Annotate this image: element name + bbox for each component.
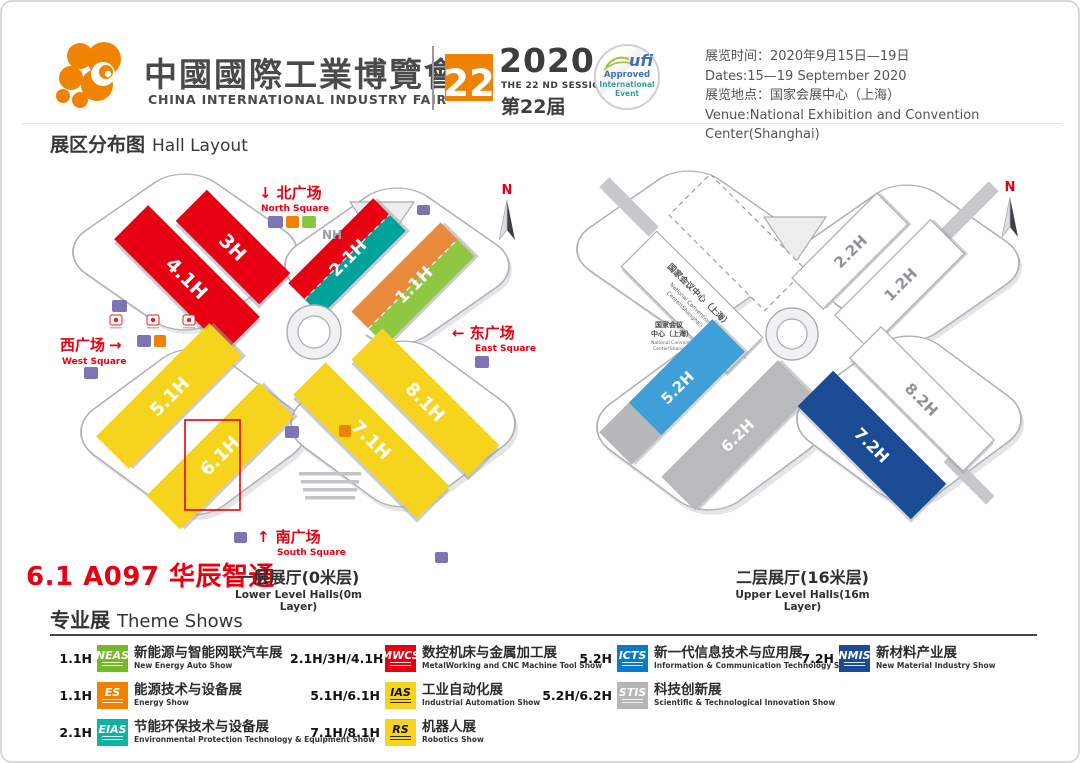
- fair-title-en: CHINA INTERNATIONAL INDUSTRY FAIR: [148, 92, 447, 107]
- svg-text:西广场→: 西广场→: [60, 336, 122, 354]
- south-zh: 南广场: [276, 528, 321, 546]
- compass-icon: N: [499, 183, 515, 240]
- show-logo-eias: EIAS: [97, 719, 128, 746]
- info-time-en: Dates:15—19 September 2020: [705, 67, 1078, 87]
- svg-text:←东广场: ←东广场: [452, 324, 515, 342]
- theme-show-item: 1.1H NEAS 新能源与智能网联汽车展New Energy Auto Sho…: [32, 643, 283, 673]
- svg-text:↓北广场: ↓北广场: [259, 184, 322, 202]
- lower-level-map: 3H 4.1H 2.1H 1.1H 5.1H: [47, 170, 547, 565]
- show-logo-ias: IAS: [385, 682, 416, 709]
- theme-show-item: 7.2H NMIS 新材料产业展New Material Industry Sh…: [764, 643, 996, 673]
- ncc-small-zh1: 国家会议: [655, 320, 684, 329]
- show-title-en: Industrial Automation Show: [422, 698, 540, 707]
- center-ring: [287, 305, 341, 359]
- info-icon: [339, 425, 351, 437]
- hall-code: 2.1H: [32, 725, 92, 740]
- metro-icon: [137, 335, 151, 347]
- compass-n-label: N: [502, 183, 513, 198]
- theme-shows-rule: [50, 634, 1037, 636]
- theme-title-en: Theme Shows: [117, 611, 243, 632]
- bus-icon: [435, 552, 448, 563]
- section-title: 展区分布图 Hall Layout: [50, 130, 248, 157]
- section-title-en: Hall Layout: [152, 136, 248, 156]
- bus-icon: [475, 356, 489, 368]
- theme-show-item: 5.2H/6.2H STIS 科技创新展Scientific & Technol…: [532, 680, 835, 710]
- ufi-name: ufi: [629, 51, 653, 70]
- show-logo-rs: RS: [385, 719, 416, 746]
- show-title-en: Scientific & Technological Innovation Sh…: [654, 698, 835, 707]
- hall-code: 7.1H/8.1H: [290, 725, 380, 740]
- info-time-zh: 展览时间：2020年9月15日—19日: [705, 47, 1078, 67]
- center-ring: [766, 308, 818, 360]
- session-number-badge: 22: [445, 54, 493, 101]
- parking-icon: [302, 216, 316, 228]
- theme-title-zh: 专业展: [50, 604, 110, 633]
- show-logo-stis: STIS: [617, 682, 648, 709]
- session-label-zh: 第22届: [501, 92, 565, 119]
- east-arrow: ←: [452, 324, 465, 342]
- show-title-zh: 新材料产业展: [876, 646, 996, 661]
- show-title-zh: 工业自动化展: [422, 683, 540, 698]
- show-logo-neas: NEAS: [97, 645, 128, 672]
- metro-icon: [285, 426, 299, 438]
- fair-title-zh: 中國國際工業博覽會: [144, 48, 459, 96]
- fair-logo-icon: [50, 36, 140, 116]
- info-venue-zh: 展览地点：国家会展中心（上海）: [705, 86, 1078, 106]
- nh-label: NH: [322, 228, 342, 242]
- upper-level-map: 国家会议中心（上海） National Convention Center(Sh…: [577, 167, 1047, 567]
- ufi-international: International: [596, 80, 658, 89]
- hall-code: 5.1H/6.1H: [290, 688, 380, 703]
- metro-icon: [268, 216, 283, 228]
- show-title-zh: 科技创新展: [654, 683, 835, 698]
- east-square-label: ←东广场 East Square: [452, 324, 536, 368]
- show-title-en: Energy Show: [134, 698, 242, 707]
- ufi-approved: Approved: [596, 70, 658, 80]
- show-logo-es: ES: [97, 682, 128, 709]
- bus-icon: [234, 532, 247, 543]
- exhibition-info: 展览时间：2020年9月15日—19日 Dates:15—19 Septembe…: [705, 47, 1078, 145]
- hall-code: 1.1H: [32, 651, 92, 666]
- hall-code: 1.1H: [32, 688, 92, 703]
- theme-show-item: 1.1H ES 能源技术与设备展Energy Show: [32, 680, 242, 710]
- show-title-en: New Material Industry Show: [876, 661, 996, 670]
- header-rule: [22, 123, 1062, 124]
- west-en: West Square: [62, 357, 126, 367]
- east-zh: 东广场: [470, 324, 515, 342]
- show-title-en: New Energy Auto Show: [134, 661, 283, 670]
- north-arrow: ↓: [259, 184, 272, 202]
- west-arrow: →: [109, 336, 122, 354]
- north-zh: 北广场: [277, 184, 322, 202]
- show-title-zh: 机器人展: [422, 720, 484, 735]
- show-title-en: Robotics Show: [422, 735, 484, 744]
- section-title-zh: 展区分布图: [50, 130, 145, 157]
- show-logo-nmis: NMIS: [839, 645, 870, 672]
- bus-icon: [417, 205, 430, 215]
- bus-icon: [84, 367, 98, 379]
- east-en: East Square: [475, 344, 536, 354]
- info-icon: [154, 335, 166, 347]
- hall-code: 5.2H: [532, 651, 612, 666]
- south-arrow: ↑: [257, 528, 270, 546]
- lower-caption-zh: 一层展厅(0米层): [216, 564, 381, 588]
- session-year: 2020: [499, 44, 595, 77]
- hall-code: 7.2H: [764, 651, 834, 666]
- header-divider: [432, 46, 434, 110]
- compass-icon: N: [1002, 180, 1018, 237]
- compass-n-label: N: [1005, 180, 1016, 195]
- session-label-en: THE 22 ND SESSION: [501, 81, 608, 91]
- svg-text:↑南广场: ↑南广场: [257, 528, 321, 546]
- upper-caption-en: Upper Level Halls(16m Layer): [720, 589, 885, 613]
- ncc-small-zh2: 中心（上海）: [651, 329, 693, 338]
- hall-code: 5.2H/6.2H: [532, 688, 612, 703]
- ufi-leaf-icon: [602, 51, 632, 71]
- upper-caption: 二层展厅(16米层) Upper Level Halls(16m Layer): [720, 564, 885, 613]
- show-title-zh: 能源技术与设备展: [134, 683, 242, 698]
- info-venue-en: Venue:National Exhibition and Convention…: [705, 106, 1078, 145]
- theme-show-item: 5.1H/6.1H IAS 工业自动化展Industrial Automatio…: [290, 680, 540, 710]
- page: 中國國際工業博覽會 CHINA INTERNATIONAL INDUSTRY F…: [0, 0, 1080, 763]
- hall-code: 2.1H/3H/4.1H: [290, 651, 380, 666]
- upper-caption-zh: 二层展厅(16米层): [720, 564, 885, 588]
- theme-show-item: 7.1H/8.1H RS 机器人展Robotics Show: [290, 717, 484, 747]
- show-logo-mwcs: MWCS: [385, 645, 416, 672]
- show-logo-icts: ICTS: [617, 645, 648, 672]
- west-zh: 西广场: [60, 336, 105, 354]
- bus-icon: [112, 300, 127, 312]
- south-en: South Square: [277, 548, 346, 558]
- ufi-event: Event: [596, 89, 658, 98]
- ufi-badge: ufi Approved International Event: [594, 44, 660, 110]
- info-icon: [286, 216, 299, 228]
- north-en: North Square: [261, 204, 329, 214]
- show-title-zh: 新能源与智能网联汽车展: [134, 646, 283, 661]
- theme-shows-title: 专业展 Theme Shows: [50, 604, 243, 633]
